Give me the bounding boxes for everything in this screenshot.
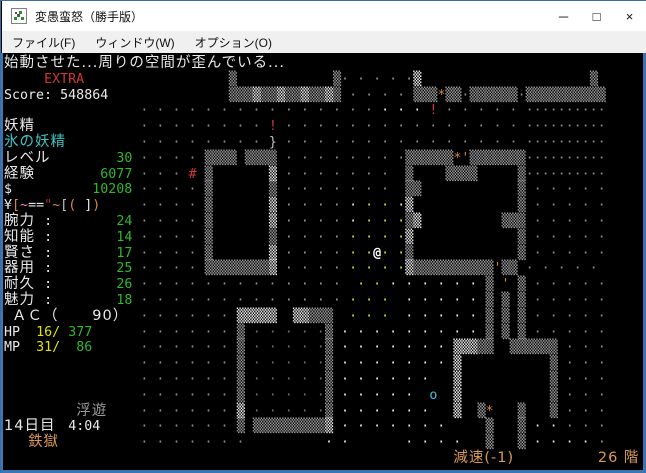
mineral-vein: ▒	[269, 214, 277, 230]
floor-run: ··········	[526, 151, 606, 167]
gold-label: $	[4, 182, 12, 198]
potion-item: !	[429, 103, 437, 119]
floor-run: · · · ·	[285, 246, 341, 262]
mineral-vein: ▒	[237, 404, 245, 420]
window-border-right	[643, 53, 645, 470]
wall-run: ▒	[518, 293, 526, 309]
floor-run: :	[44, 277, 52, 293]
floor-run: · · · · · · ·	[140, 435, 244, 451]
wall-run: ▒	[518, 309, 526, 325]
wall-run: ▒	[237, 372, 245, 388]
floor-run: · · ·	[566, 388, 606, 404]
open-door: '	[461, 151, 469, 167]
floor-run: · · · · ·	[341, 72, 413, 88]
floor-run: · · · · ·	[534, 182, 606, 198]
equip-amulet: ~	[20, 198, 28, 214]
wall-run: ▒	[518, 198, 526, 214]
floor-run: · · · · ·	[405, 277, 477, 293]
wall-run: ▒	[518, 182, 526, 198]
wall-run: ▒	[518, 277, 526, 293]
red-wall: #	[189, 167, 197, 183]
floor-run: · · ·	[140, 167, 180, 183]
floor-run: · · · ·	[534, 435, 590, 451]
wall-run: ▒	[502, 309, 510, 325]
equip-weapon: ¥	[4, 198, 12, 214]
floor-run: · · · · · · · ·	[140, 135, 260, 151]
floor-run: · · · · ·	[253, 340, 325, 356]
equip-shield: ]	[84, 198, 92, 214]
wall-run: ▒	[518, 404, 526, 420]
app-window: 変愚蛮怒（勝手版） ─ □ × ファイル(F) ウィンドウ(W) オプション(O…	[0, 0, 646, 473]
floor-run: · · · · · · ·	[285, 167, 389, 183]
wall-run: ▒	[486, 419, 494, 435]
mineral-vein: ▒	[453, 356, 461, 372]
wall-run: ▒	[550, 404, 558, 420]
floor-run: · ·	[494, 119, 518, 135]
floor-run: ·	[397, 198, 405, 214]
floor-run: · · ·	[566, 340, 606, 356]
floor-run: ·	[518, 88, 526, 104]
floor-run: · · · ·	[140, 246, 196, 262]
levitation-status: 浮遊	[76, 404, 107, 420]
floor-run: · · · · ·	[405, 325, 477, 341]
floor-run: · · · ·	[140, 182, 196, 198]
wall-run: ▒	[237, 356, 245, 372]
stat-str-label: 腕力	[4, 214, 35, 230]
floor-run: · · · · ·	[534, 325, 606, 341]
floor-run: · · · ·	[285, 214, 341, 230]
floor-run: · ·	[365, 198, 389, 214]
floor-run: · · · ·	[341, 356, 397, 372]
floor-run: · · · · · ·	[140, 309, 228, 325]
stat-chr-value: 18	[116, 293, 132, 309]
game-terminal[interactable]: 始動させた...周りの空間が歪んでいる...EXTRA▒▒· · · · ·▒▒…	[3, 53, 645, 470]
stat-con-label: 耐久	[4, 277, 35, 293]
floor-run: :	[44, 293, 52, 309]
floor-run: :	[44, 261, 52, 277]
wall-run: ▒	[325, 340, 333, 356]
stat-chr-label: 魅力	[4, 293, 35, 309]
floor-run: · · · · ·	[534, 230, 606, 246]
floor-run: · · · · · ·	[285, 135, 373, 151]
wall-run: ▒	[518, 167, 526, 183]
floor-run: · · · · · · · ·	[140, 119, 260, 135]
mineral-vein: ▒	[405, 198, 413, 214]
floor-run: · ·	[405, 372, 429, 388]
wall-run: ▒	[486, 325, 494, 341]
mineral-vein: ▒	[269, 198, 277, 214]
wall-run: ▒	[502, 325, 510, 341]
floor-run: · · ·	[566, 372, 606, 388]
mineral-vein: ▒	[453, 388, 461, 404]
ac-value: 90）	[92, 309, 128, 325]
floor-run: · · · · ·	[534, 309, 606, 325]
floor-run: · · ·	[566, 404, 606, 420]
wall-run: ▒▒▒▒▒▒	[405, 151, 453, 167]
floor-run: · · · ·	[349, 88, 405, 104]
wall-run: ▒▒▒▒▒▒▒▒▒▒	[413, 261, 493, 277]
hp-max: 377	[68, 325, 92, 341]
stat-int-value: 14	[116, 230, 132, 246]
floor-run: · · · · · ·	[140, 372, 228, 388]
floor-run: · ·	[381, 246, 405, 262]
floor-run: · · · · · · · · ·	[140, 277, 276, 293]
floor-run: · · · · ·	[534, 198, 606, 214]
floor-run: · · · ·	[285, 293, 341, 309]
floor-run: · ·	[494, 135, 518, 151]
floor-run: · · · · · · · · ·	[140, 103, 276, 119]
floor-run: · · · ·	[285, 261, 341, 277]
player-at: @	[373, 246, 381, 262]
floor-run: · · · · ·	[534, 246, 606, 262]
mineral-vein: ▒	[325, 88, 333, 104]
exp-value: 6077	[100, 167, 132, 183]
floor-run: · · ·	[365, 214, 405, 230]
floor-run: :	[44, 230, 52, 246]
wall-run: ▒▒	[445, 88, 461, 104]
floor-run: · · · ·	[285, 230, 341, 246]
ac-label: ＡＣ（	[12, 309, 59, 325]
race-name: 妖精	[4, 119, 35, 135]
window-title: 変愚蛮怒（勝手版）	[35, 8, 143, 25]
wall-run: ▒▒▒▒	[445, 167, 477, 183]
wall-run: ▒▒	[285, 88, 301, 104]
gold-value: 10208	[92, 182, 132, 198]
dungeon-name: 鉄獄	[28, 435, 59, 451]
wall-run: ▒	[237, 325, 245, 341]
wall-run: ▒	[405, 246, 413, 262]
mineral-vein: ▒	[413, 72, 421, 88]
mp-current: 31/	[36, 340, 60, 356]
equip-light: ~	[52, 198, 60, 214]
wall-run: ▒▒▒▒	[245, 151, 277, 167]
wall-run: ▒	[205, 230, 213, 246]
floor-run: · · · · · · · · ·	[140, 293, 276, 309]
app-icon[interactable]	[11, 8, 27, 24]
floor-run: · · · · · ·	[285, 103, 373, 119]
wall-run: ▒▒▒▒▒▒▒▒▒	[253, 419, 325, 435]
floor-run: · · · ·	[341, 325, 397, 341]
floor-run: · · · · · · ·	[285, 182, 389, 198]
wall-run: ▒	[205, 246, 213, 262]
wall-run: ▒	[486, 309, 494, 325]
floor-run: · · · · · ·	[140, 340, 228, 356]
equip-rings: ==	[28, 198, 44, 214]
wall-run: ▒	[518, 419, 526, 435]
wall-run: ▒	[205, 167, 213, 183]
speed-status: 減速(-1)	[453, 451, 514, 467]
floor-run: · · ·	[566, 356, 606, 372]
floor-run: · · · · · · ·	[381, 119, 485, 135]
floor-run: :	[44, 214, 52, 230]
floor-run: · · · ·	[341, 388, 397, 404]
wall-run: ▒	[269, 230, 277, 246]
floor-run: · · · · · ·	[140, 356, 228, 372]
wall-run: ▒	[486, 435, 494, 451]
level-label: レベル	[4, 151, 51, 167]
wall-run: ▒▒▒	[309, 309, 333, 325]
minimize-button[interactable]: ─	[547, 1, 580, 31]
floor-run: · · · ·	[140, 151, 196, 167]
wall-run: ▒	[502, 293, 510, 309]
hp-current: 16/	[36, 325, 60, 341]
wall-run: ▒▒▒	[502, 214, 526, 230]
floor-run: ·	[349, 214, 357, 230]
menu-bar: ファイル(F) ウィンドウ(W) オプション(O)	[2, 31, 646, 53]
wall-run: ▒	[325, 356, 333, 372]
bow-item: }	[269, 135, 277, 151]
floor-run: · · · · ·	[253, 388, 325, 404]
stat-dex-label: 器用	[4, 261, 35, 277]
close-button[interactable]: ×	[613, 1, 646, 31]
mineral-vein: ▒	[453, 372, 461, 388]
menu-options[interactable]: オプション(O)	[185, 31, 282, 53]
floor-run: · · · · · ·	[140, 325, 228, 341]
wall-run: ▒	[405, 214, 413, 230]
floor-run: · · · · ·	[253, 404, 325, 420]
stat-wis-value: 17	[116, 246, 132, 262]
mineral-vein: ▒	[405, 230, 413, 246]
wall-run: ▒	[550, 356, 558, 372]
floor-run: · · · · · ·	[285, 119, 373, 135]
hp-label: HP	[4, 325, 20, 341]
floor-run: · · · ·	[285, 198, 341, 214]
stat-wis-label: 賢さ	[4, 246, 35, 262]
wall-run: ▒	[518, 435, 526, 451]
score-value: 548864	[60, 88, 108, 104]
wall-run: ▒▒	[477, 340, 493, 356]
floor-run: · · · · ·	[534, 214, 606, 230]
floor-run: · · · · ·	[253, 356, 325, 372]
depth-indicator: 26 階	[598, 451, 640, 467]
mp-max: 86	[76, 340, 92, 356]
floor-run: · · ·	[349, 293, 389, 309]
floor-run: · · · ·	[341, 372, 397, 388]
mineral-vein: ▒	[301, 88, 309, 104]
wall-run: ▒	[518, 325, 526, 341]
floor-run: ··········	[526, 167, 606, 183]
mineral-vein: ▒▒	[293, 309, 309, 325]
stat-con-value: 26	[116, 277, 132, 293]
open-door: '	[502, 277, 510, 293]
wall-run: ▒	[205, 198, 213, 214]
floor-run: · ·	[357, 277, 381, 293]
floor-run: ··········	[526, 103, 606, 119]
floor-run: · · · ·	[349, 230, 405, 246]
wall-run: ▒	[237, 419, 245, 435]
wall-run: ▒▒▒	[229, 88, 253, 104]
mineral-treasure: *	[486, 404, 494, 420]
wall-run: ▒	[325, 372, 333, 388]
class-name: 氷の妖精	[4, 135, 66, 151]
floor-run: · · · ·	[140, 214, 196, 230]
stat-str-value: 24	[116, 214, 132, 230]
floor-run: :	[44, 246, 52, 262]
floor-run: · · ·	[405, 340, 445, 356]
wall-run: ▒	[205, 182, 213, 198]
wall-run: ▒▒▒▒▒▒	[510, 340, 558, 356]
level-value: 30	[116, 151, 132, 167]
mineral-vein: ▒▒▒▒▒	[237, 309, 277, 325]
floor-run: · · · ·	[405, 435, 461, 451]
wall-run: ▒	[325, 388, 333, 404]
floor-run: · · · ·	[140, 230, 196, 246]
floor-run: · · · ·	[140, 198, 196, 214]
floor-run: · · ·	[566, 419, 606, 435]
mineral-vein: ▒	[253, 88, 261, 104]
wall-run: ▒▒▒	[413, 88, 437, 104]
window-border-left	[1, 53, 3, 470]
mineral-vein: ▒	[453, 404, 461, 420]
equip-cloak: (	[68, 198, 76, 214]
wall-run: ▒	[333, 88, 341, 104]
floor-run: · · · ·	[341, 404, 397, 420]
floor-run: ·	[598, 435, 606, 451]
wall-run: ▒	[269, 182, 277, 198]
floor-run: · · · · ·	[405, 293, 477, 309]
floor-run: · · ·	[405, 419, 445, 435]
wall-run: ▒	[518, 246, 526, 262]
wall-run: ▒▒▒▒▒▒▒	[469, 151, 525, 167]
maximize-button[interactable]: □	[580, 1, 613, 31]
wall-run: ▒	[550, 372, 558, 388]
floor-run: · · ·	[349, 309, 389, 325]
floor-run: · ·	[534, 419, 558, 435]
mineral-vein: ▒▒▒	[453, 340, 477, 356]
mineral-vein: ▒	[269, 246, 277, 262]
equip-quiver: "	[44, 198, 52, 214]
wall-run: ▒▒▒▒	[205, 151, 237, 167]
floor-run: · · · ·	[341, 419, 397, 435]
floor-run: · · · ·	[349, 261, 405, 277]
floor-run: · · · · ·	[526, 261, 598, 277]
wall-run: ▒▒▒▒▒▒▒▒▒▒	[526, 88, 606, 104]
floor-run: · · · · · · ·	[285, 151, 389, 167]
stat-int-label: 知能	[4, 230, 35, 246]
mineral-treasure: *	[437, 88, 445, 104]
floor-run: · · · ·	[341, 340, 397, 356]
monster-o: o	[429, 388, 437, 404]
message-line: 始動させた...周りの空間が歪んでいる...	[4, 56, 285, 72]
floor-run: · · · ·	[285, 277, 341, 293]
wall-run: ▒	[205, 214, 213, 230]
floor-run: ·	[397, 151, 405, 167]
mineral-vein: ▒	[413, 214, 421, 230]
floor-run: · ·	[349, 246, 373, 262]
mineral-vein: ▒	[269, 261, 277, 277]
floor-run: · · · · · · ·	[381, 135, 485, 151]
floor-run: · · · · ·	[534, 277, 606, 293]
wall-run: ▒	[325, 325, 333, 341]
wall-run: ▒	[405, 167, 413, 183]
floor-run: · · · · · ·	[140, 388, 228, 404]
equip-armor: [	[12, 198, 20, 214]
wall-run: ▒▒	[405, 182, 421, 198]
floor-run: · ·	[325, 435, 349, 451]
stat-dex-value: 25	[116, 261, 132, 277]
character-title: EXTRA	[44, 72, 84, 88]
equip-body: [	[60, 198, 68, 214]
floor-run: · · ·	[405, 356, 445, 372]
floor-run: ··········	[526, 135, 606, 151]
wall-run: ▒▒	[502, 261, 518, 277]
potion-item: !	[269, 119, 277, 135]
floor-run: ·	[461, 88, 469, 104]
day-counter: 14日目	[4, 419, 55, 435]
wall-run: ▒	[550, 388, 558, 404]
wall-run: ▒	[333, 72, 341, 88]
mineral-vein: ▒	[269, 167, 277, 183]
mineral-vein: ▒	[277, 88, 285, 104]
menu-file[interactable]: ファイル(F)	[2, 31, 85, 53]
wall-run: ▒	[486, 293, 494, 309]
floor-run: ·	[349, 198, 357, 214]
floor-run: · · ·	[381, 103, 421, 119]
floor-run: · · · · ·	[405, 309, 477, 325]
wall-run: ▒▒	[261, 88, 277, 104]
wall-run: ▒	[237, 388, 245, 404]
mineral-vein: ▒	[325, 419, 333, 435]
floor-run: · ·	[405, 404, 429, 420]
floor-run: · · · · ·	[445, 103, 517, 119]
score-label: Score:	[4, 88, 52, 104]
floor-run: · · · · ·	[253, 325, 325, 341]
menu-window[interactable]: ウィンドウ(W)	[85, 31, 184, 53]
title-bar[interactable]: 変愚蛮怒（勝手版） ─ □ ×	[2, 1, 646, 31]
mineral-vein: ▒	[405, 261, 413, 277]
floor-run: · · · · ·	[534, 293, 606, 309]
wall-run: ▒▒▒▒▒▒▒▒	[205, 261, 269, 277]
floor-run: · · · · · ·	[140, 419, 228, 435]
floor-run: ·	[405, 388, 413, 404]
wall-run: ▒	[325, 404, 333, 420]
wall-run: ▒	[477, 404, 485, 420]
open-door: '	[494, 261, 502, 277]
exp-label: 経験	[4, 167, 35, 183]
wall-run: ▒▒	[309, 88, 325, 104]
wall-run: ▒	[229, 72, 237, 88]
wall-run: ▒▒▒▒▒▒	[469, 88, 517, 104]
mp-label: MP	[4, 340, 20, 356]
equip-helm: )	[92, 198, 100, 214]
floor-run: · · · · · ·	[140, 404, 228, 420]
wall-run: ▒	[518, 230, 526, 246]
floor-run: · · · ·	[140, 261, 196, 277]
wall-run: ▒	[590, 72, 598, 88]
game-time: 4:04	[68, 419, 100, 435]
mineral-treasure: *	[453, 151, 461, 167]
floor-run: ··········	[526, 119, 606, 135]
wall-run: ▒	[486, 277, 494, 293]
floor-run: ·	[389, 277, 397, 293]
window-controls: ─ □ ×	[547, 1, 646, 31]
wall-run: ▒	[237, 340, 245, 356]
floor-run: · · · · ·	[253, 372, 325, 388]
